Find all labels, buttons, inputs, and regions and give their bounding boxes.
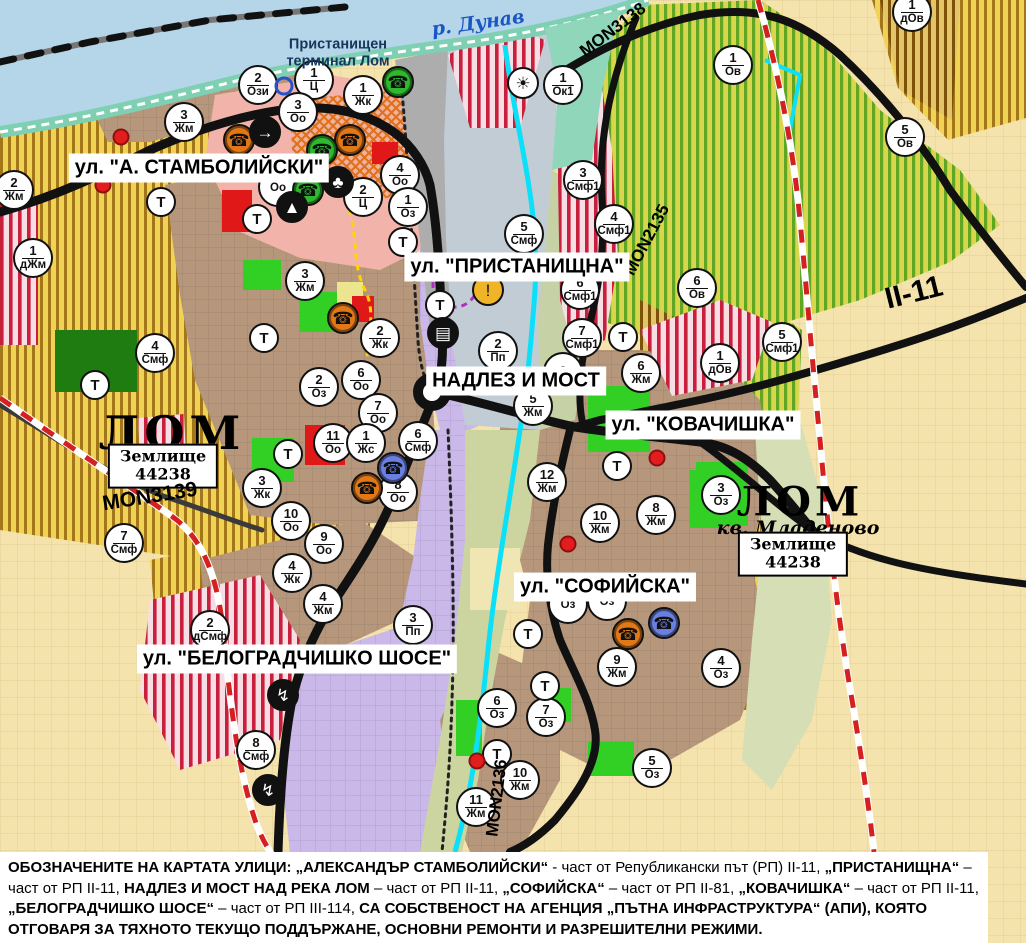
street-label: НАДЛЕЗ И МОСТ [426, 367, 606, 396]
road-number-label: MON2136 [482, 758, 511, 837]
legend-text-segment: - част от Републикански път (РП) II-11, [548, 859, 824, 876]
legend-note: ОБОЗНАЧЕНИТЕ НА КАРТАТА УЛИЦИ: „АЛЕКСАНД… [0, 852, 988, 943]
road-number-label: II-11 [882, 269, 947, 316]
legend-text-segment: „БЕЛОГРАДЧИШКО ШОСЕ“ [8, 900, 214, 917]
street-label: ул. "А. СТАМБОЛИЙСКИ" [69, 154, 329, 183]
legend-text-segment: – част от РП III-114, [214, 900, 359, 917]
legend-text-segment: „ПРИСТАНИЩНА“ [825, 859, 960, 876]
legend-text-segment: „КОВАЧИШКА“ [738, 880, 850, 897]
legend-text-segment: „СОФИЙСКА“ [502, 880, 604, 897]
zoning-map[interactable]: 2Жм1дЖм2Ози1Ц1Жк3Оо3Жм4Оо2Ц1ОзОо3Жм4Смф2… [0, 0, 1026, 943]
landbox-label: Землище 44238 [738, 532, 848, 577]
road-number-label: MON3138 [576, 0, 650, 61]
street-label: ул. "БЕЛОГРАДЧИШКО ШОСЕ" [137, 645, 457, 674]
legend-text-segment: – част от РП II-11, [370, 880, 503, 897]
street-label: ул. "КОВАЧИШКА" [606, 411, 801, 440]
legend-text-segment: – част от РП II-81, [605, 880, 739, 897]
labels-layer: ул. "А. СТАМБОЛИЙСКИ"ул. "ПРИСТАНИЩНА"НА… [0, 0, 1026, 943]
terminal-label: Пристанищен терминал Лом [286, 36, 389, 69]
legend-text-segment: ОБОЗНАЧЕНИТЕ НА КАРТАТА УЛИЦИ: „АЛЕКСАНД… [8, 859, 548, 876]
legend-text-segment: – част от РП II-11, [850, 880, 978, 897]
legend-text-segment: НАДЛЕЗ И МОСТ НАД РЕКА ЛОМ [124, 880, 370, 897]
river-label: р. Дунав [430, 6, 526, 41]
street-label: ул. "ПРИСТАНИЩНА" [404, 253, 629, 282]
street-label: ул. "СОФИЙСКА" [514, 573, 696, 602]
